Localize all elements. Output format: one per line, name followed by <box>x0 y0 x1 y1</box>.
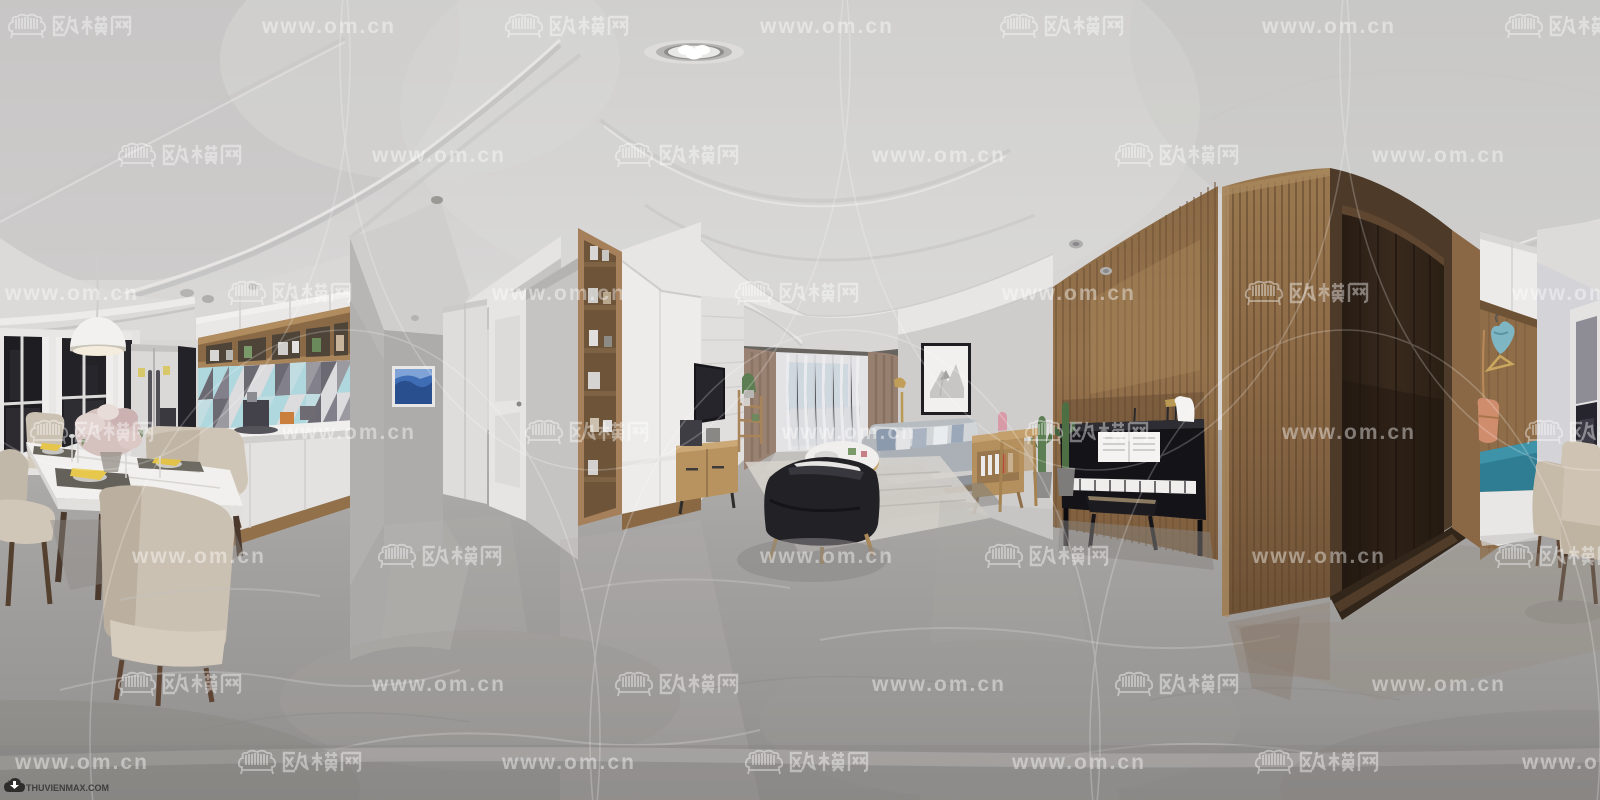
svg-text:THUVIENMAX.COM: THUVIENMAX.COM <box>26 783 109 793</box>
